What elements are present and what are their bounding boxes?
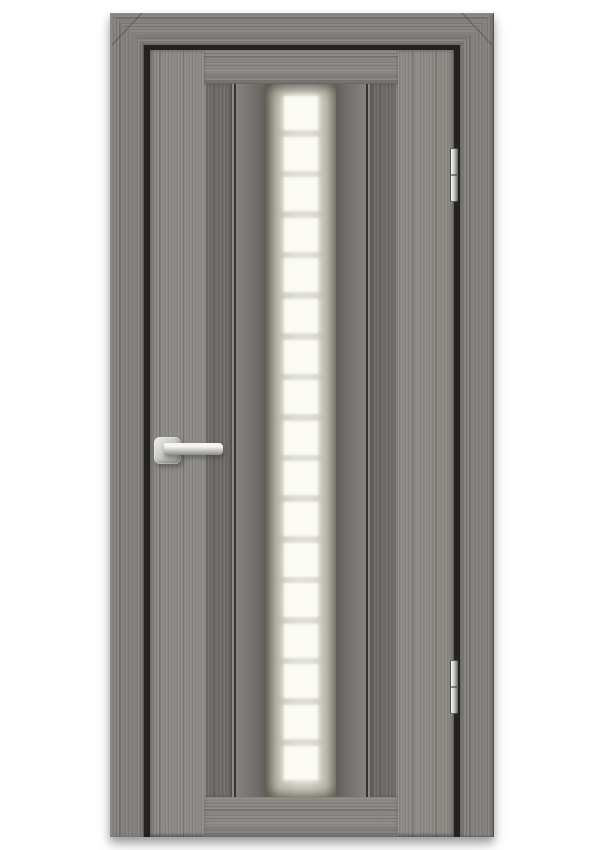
glass-pane	[284, 96, 318, 130]
door-leaf	[150, 50, 454, 837]
door-handle-lever	[164, 443, 223, 455]
door-bottom-rail	[204, 797, 398, 837]
door-casing-left	[110, 13, 144, 837]
glass-pane	[284, 705, 318, 739]
glass-pane	[284, 746, 318, 780]
door-assembly	[110, 13, 494, 837]
glass-pane	[284, 177, 318, 211]
glazing-bead-right	[336, 84, 368, 797]
glass-pane	[284, 421, 318, 455]
glass-pane	[284, 380, 318, 414]
door-casing-top	[110, 13, 494, 45]
glass-pane	[284, 258, 318, 292]
glass-pane	[284, 583, 318, 617]
glass-pane	[284, 502, 318, 536]
product-photo	[0, 0, 600, 850]
door-casing-right	[460, 13, 494, 837]
glass-pane	[284, 299, 318, 333]
glass-pane	[284, 340, 318, 374]
glass-pane	[284, 461, 318, 495]
glass-pane	[284, 218, 318, 252]
glass-pane	[284, 624, 318, 658]
glazing-bead-left	[234, 84, 266, 797]
hinge-bottom	[450, 660, 458, 714]
glass-pane	[284, 137, 318, 171]
glass-pane	[284, 543, 318, 577]
mullion-strip-left	[204, 84, 232, 797]
door-top-rail	[204, 50, 398, 84]
glass-insert	[266, 84, 336, 797]
hinge-top	[450, 148, 458, 202]
glass-pane	[284, 664, 318, 698]
mullion-strip-right	[370, 84, 398, 797]
